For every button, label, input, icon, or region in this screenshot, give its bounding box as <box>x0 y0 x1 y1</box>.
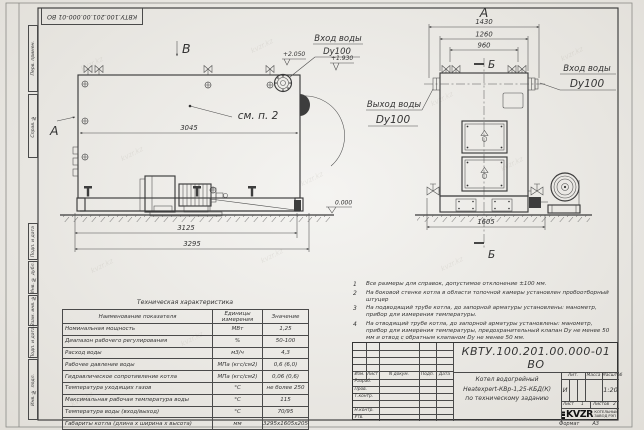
spec-name: Температура воды (вход/выход) <box>63 406 213 418</box>
format-value: А3 <box>592 421 599 427</box>
note-item: 3 На подводящий трубе котла, до запорной… <box>349 305 615 319</box>
drain-valve-icon <box>427 184 440 195</box>
spec-value: 3295х1605х2050 <box>263 418 309 430</box>
side-view: 3045 3125 3295 0.000 +2.050 +1.930 Вход … <box>49 34 363 252</box>
spec-table-block: Техническая характеристика Наименование … <box>62 299 308 430</box>
outlet-flange <box>433 78 440 90</box>
table-row: Габариты котла (длина х ширина х высота)… <box>63 418 309 430</box>
note-number: 2 <box>349 290 366 304</box>
note-text: На подводящий трубе котла, до запорной а… <box>366 305 615 319</box>
table-row: Гидравлическое сопротивление котлаМПа (к… <box>63 371 309 383</box>
spec-name: Максимальная рабочая температура воды <box>63 394 213 406</box>
dim-3295: 3295 <box>183 240 200 248</box>
note-item: 2 На боковой стенке котла в области топо… <box>349 290 615 304</box>
sidebar-cell-inv-podl: Инв. № подл. <box>28 359 38 420</box>
elevation-zero: 0.000 <box>335 200 352 207</box>
spec-value: 115 <box>263 394 309 406</box>
ground-hatch <box>417 215 590 222</box>
note-number: 1 <box>349 281 366 288</box>
see-note-label: см. п. 2 <box>238 110 279 122</box>
spec-name: Расход воды <box>63 347 213 359</box>
section-label-bottom: Б <box>488 249 495 261</box>
doc-name-line1: Котел водогрейный <box>455 376 559 383</box>
view-a-arrow <box>57 117 75 121</box>
inlet-label: Вход воды <box>314 34 362 44</box>
top-stamp: КВТУ.100.201.00.000-01 ВО <box>41 8 143 25</box>
scale-value: 1:20 <box>602 386 619 394</box>
spec-table-title: Техническая характеристика <box>62 299 308 306</box>
col-izm: Изм. <box>353 372 366 377</box>
lug-icon <box>82 81 274 194</box>
elevation-2050: +2.050 <box>283 51 305 58</box>
table-row: Рабочее давление водыМПа (кгс/см2)0,6 (6… <box>63 359 309 371</box>
spec-value: не более 250 <box>263 382 309 394</box>
valve-icon <box>95 66 103 76</box>
valve-icon <box>204 66 212 76</box>
drain-valve-icon <box>84 186 256 197</box>
spec-value: 0,6 (6,0) <box>263 359 309 371</box>
spec-header-value: Значение <box>263 310 309 324</box>
spec-name: Рабочее давление воды <box>63 359 213 371</box>
kvzr-logo-sub2: ЗАВОД РЭП <box>594 415 618 419</box>
spec-name: Температура уходящих газов <box>63 382 213 394</box>
doc-name-line2: Heatexpert-КВр-1,25-КБД(К) <box>455 386 559 393</box>
sight-glass <box>503 93 523 108</box>
spec-units: МПа (кгс/см2) <box>213 371 263 383</box>
ground-hatch <box>62 215 330 222</box>
table-row: Диапазон рабочего регулирования%50-100 <box>63 335 309 347</box>
valve-icon <box>518 66 526 74</box>
sidebar-label: Инв. № подл. <box>31 374 36 406</box>
valve-icon <box>452 66 460 74</box>
note-text: На боковой стенке котла в области топочн… <box>366 290 615 304</box>
table-row: Температура воды (вход/выход)°С70/95 <box>63 406 309 418</box>
sidebar-cell-vzam: Взам. инв. № <box>28 295 38 326</box>
sidebar-cell-sprav: Справ. № <box>28 94 38 158</box>
upper-door <box>462 121 507 153</box>
elevation-mark <box>282 59 306 65</box>
row-nkontr: Н.контр. <box>355 408 374 413</box>
spec-table: Наименование показателя Единицы измерени… <box>62 309 309 430</box>
elevation-zero-mark <box>326 207 352 213</box>
spec-units: °С <box>213 406 263 418</box>
lit-label: Лит. <box>561 373 585 378</box>
sidebar-label: Подп. и дата <box>31 327 36 358</box>
col-data: Дата <box>436 372 453 377</box>
valve-icon <box>442 66 450 74</box>
boiler-body-side <box>78 75 300 198</box>
spec-units: °С <box>213 382 263 394</box>
inlet-flange <box>275 75 292 92</box>
note-text: Все размеры для справок, допустимое откл… <box>366 281 615 288</box>
inlet-label: Вход воды <box>563 64 611 74</box>
sidebar-cell-perv-primen: Перв. примен. <box>28 25 38 92</box>
spec-units: °С <box>213 394 263 406</box>
sidebar-cell-podp-data-2: Подп. и дата <box>28 327 38 358</box>
door-handle-icon <box>482 174 487 179</box>
spec-value: 70/95 <box>263 406 309 418</box>
note-number: 3 <box>349 305 366 319</box>
table-row: Номинальная мощностьМВт1,25 <box>63 324 309 336</box>
spec-header-units: Единицы измерения <box>213 310 263 324</box>
note-item: 1 Все размеры для справок, допустимое от… <box>349 281 615 288</box>
table-row: Температура уходящих газов°Сне более 250 <box>63 382 309 394</box>
dim-1430: 1430 <box>475 18 492 26</box>
doc-name-line3: по техническому заданию <box>455 395 559 402</box>
row-prov: Пров. <box>355 387 368 392</box>
table-row: Максимальная рабочая температура воды°С1… <box>63 394 309 406</box>
valve-icon <box>84 66 92 76</box>
sidebar-cell-podp-data-1: Подп. и дата <box>28 223 38 260</box>
col-list: Лист <box>366 372 379 377</box>
spec-header-name: Наименование показателя <box>63 310 213 324</box>
outlet-label: Выход воды <box>367 100 421 110</box>
title-block: Изм. Лист N докум. Подп. Дата Разраб. Пр… <box>352 342 618 420</box>
sidebar-label: Инв. № дубл. <box>31 262 36 294</box>
format-word: Формат <box>559 421 579 427</box>
spec-units: м3/ч <box>213 347 263 359</box>
top-stamp-text: КВТУ.100.201.00.000-01 ВО <box>47 13 137 20</box>
spec-name: Габариты котла (длина х ширина х высота) <box>63 418 213 430</box>
note-item: 4 На отводящий трубе котла, до запорной … <box>349 321 615 342</box>
sidebar-cell-inv-dubl: Инв. № дубл. <box>28 261 38 294</box>
sidebar-label: Взам. инв. № <box>31 295 36 326</box>
spec-value: 1,25 <box>263 324 309 336</box>
elevation-mark <box>330 63 354 70</box>
sheet-value: 1 <box>581 402 584 407</box>
dim-3125: 3125 <box>177 224 194 232</box>
burner-assembly <box>140 176 228 216</box>
lower-door <box>462 157 507 191</box>
spec-name: Номинальная мощность <box>63 324 213 336</box>
col-docum: N докум. <box>379 372 419 377</box>
spec-units: мм <box>213 418 263 430</box>
leader-dot <box>189 105 192 108</box>
dim-1605: 1605 <box>477 218 494 226</box>
front-view: А 1430 1260 960 Б Б <box>366 5 616 261</box>
drawing-sheet: kvzr.kz kvzr.kz kvzr.kz kvzr.kz kvzr.kz … <box>0 0 644 430</box>
spec-value: 50-100 <box>263 335 309 347</box>
kvzr-logo-icon <box>562 411 565 419</box>
blower-fan <box>548 173 580 213</box>
door-handle-icon <box>482 137 487 142</box>
format-label: Формат А3 <box>540 421 618 427</box>
inlet-size: Dy100 <box>570 78 605 90</box>
section-label-top: Б <box>488 59 495 71</box>
inlet-size: Dy100 <box>323 47 351 57</box>
spec-units: МВт <box>213 324 263 336</box>
view-b-label: В <box>182 41 191 56</box>
doc-number: КВТУ.100.201.00.000-01 ВО <box>453 345 619 371</box>
outlet-size: Dy100 <box>376 114 411 126</box>
sheets-label: Листов <box>593 402 609 407</box>
drain-valve-icon <box>528 184 543 195</box>
spec-header-row: Наименование показателя Единицы измерени… <box>63 310 309 324</box>
sheets-value: 2 <box>613 402 616 407</box>
spec-units: МПа (кгс/см2) <box>213 359 263 371</box>
kvzr-logo: KVZR КОТЕЛЬНЫЙ ЗАВОД РЭП <box>562 409 618 420</box>
note-text: На отводящий трубе котла, до запорной ар… <box>366 321 615 342</box>
valve-icon <box>508 66 516 74</box>
scale-label: Масштаб <box>602 373 619 378</box>
spec-value: 4,3 <box>263 347 309 359</box>
sidebar-label: Перв. примен. <box>31 41 36 76</box>
mass-label: Масса <box>585 373 602 378</box>
pipe-elbow <box>529 197 541 208</box>
valve-icon <box>266 66 274 76</box>
sidebar-label: Справ. № <box>31 115 36 138</box>
dim-1260: 1260 <box>475 31 492 39</box>
flue-outlet <box>300 94 310 116</box>
row-utv: Утв. <box>355 415 364 420</box>
spec-value: 0,06 (0,6) <box>263 371 309 383</box>
kvzr-logo-text: KVZR <box>566 409 593 420</box>
dim-960: 960 <box>478 42 491 50</box>
sheet-label: Лист <box>563 402 574 407</box>
notes-list: 1 Все размеры для справок, допустимое от… <box>349 281 615 343</box>
sidebar-label: Подп. и дата <box>31 226 36 257</box>
row-tkontr: Т.контр. <box>355 394 374 399</box>
lit-value: И <box>561 386 569 394</box>
dim-3045: 3045 <box>180 124 197 132</box>
spec-name: Гидравлическое сопротивление котла <box>63 371 213 383</box>
note-number: 4 <box>349 321 366 342</box>
skid-frame <box>77 198 303 211</box>
spec-units: % <box>213 335 263 347</box>
spec-name: Диапазон рабочего регулирования <box>63 335 213 347</box>
row-razrab: Разраб. <box>355 379 372 384</box>
view-a-label: А <box>49 123 59 138</box>
note-leader <box>190 106 232 117</box>
ladder-tabs <box>73 147 78 176</box>
table-row: Расход водым3/ч4,3 <box>63 347 309 359</box>
col-podp: Подп. <box>419 372 436 377</box>
